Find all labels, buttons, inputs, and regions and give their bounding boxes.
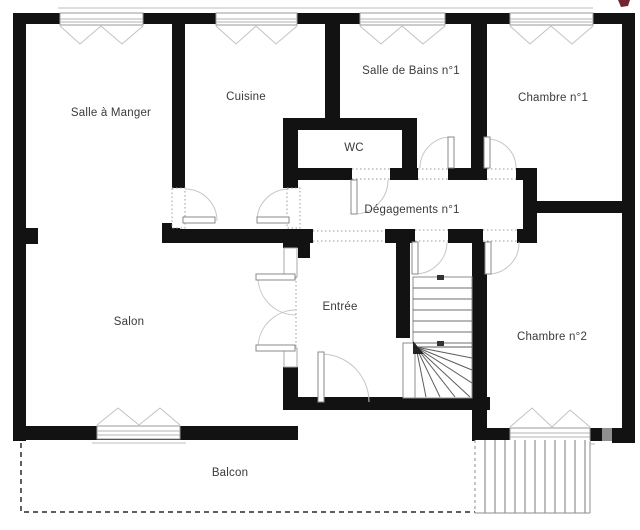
door-leaf-salon-top bbox=[256, 274, 295, 280]
wall-corridor-top-1 bbox=[283, 168, 352, 180]
door-leaf-ch2 bbox=[485, 242, 491, 274]
door-arc-salon-bottom bbox=[258, 310, 296, 348]
wall-cuisine-sdb bbox=[325, 24, 340, 130]
door-leaf-ch1 bbox=[484, 137, 490, 168]
door-arc-ch2 bbox=[488, 242, 519, 274]
room-label-cuisine: Cuisine bbox=[226, 91, 266, 103]
room-label-salon: Salon bbox=[114, 316, 144, 328]
door-leaf-landing bbox=[412, 242, 418, 274]
logo-fragment-icon bbox=[618, 0, 630, 7]
door-arc-landing bbox=[415, 242, 447, 274]
room-label-chambre-1: Chambre n°1 bbox=[518, 92, 588, 104]
door-leaf-sdb bbox=[448, 137, 454, 168]
door-arc-salon-top bbox=[258, 277, 296, 315]
wall-salon-entree-top bbox=[283, 230, 298, 248]
wall-ch1-ch2-divider bbox=[537, 201, 622, 213]
door-arc-front bbox=[321, 354, 369, 402]
terrace-hatch bbox=[475, 440, 590, 513]
staircase-box bbox=[413, 277, 472, 398]
door-leaf-front bbox=[318, 352, 324, 402]
wall-left bbox=[13, 13, 26, 441]
wall-midband-2 bbox=[385, 229, 415, 243]
door-leaf-corridor-cuisine bbox=[257, 217, 289, 223]
wall-sam-cuisine bbox=[172, 24, 185, 188]
floor-plan: Salle à Manger Cuisine Salle de Bains n°… bbox=[0, 0, 640, 530]
staircase-mark-top bbox=[437, 275, 444, 280]
room-label-degagements: Dégagements n°1 bbox=[364, 204, 459, 216]
room-label-salle-a-manger: Salle à Manger bbox=[71, 107, 151, 119]
staircase bbox=[403, 275, 472, 398]
wall-sam-stub bbox=[26, 228, 38, 244]
door-leaf-wc bbox=[351, 180, 357, 214]
door-arc-corridor-cuisine bbox=[257, 189, 289, 221]
door-arc-ch1 bbox=[487, 139, 516, 168]
wall-entree-tstub bbox=[298, 243, 310, 258]
masked-wall-segment bbox=[602, 428, 612, 441]
door-leaf-salon-bottom bbox=[256, 345, 295, 351]
wall-corridor-top-2 bbox=[390, 168, 418, 180]
wall-entree-bottom bbox=[283, 397, 490, 410]
wall-wc-top bbox=[283, 118, 417, 130]
room-label-entree: Entrée bbox=[322, 301, 357, 313]
room-label-chambre-2: Chambre n°2 bbox=[517, 331, 587, 343]
room-label-salle-de-bains: Salle de Bains n°1 bbox=[362, 65, 460, 77]
window-salon bbox=[97, 426, 180, 439]
wall-right bbox=[622, 13, 635, 443]
floor-plan-drawing bbox=[0, 0, 640, 530]
door-arc-sdb bbox=[420, 137, 451, 168]
wall-ch2-bottom-right bbox=[612, 428, 635, 443]
window-chambre2 bbox=[510, 428, 590, 441]
door-arc-sam-cuisine bbox=[185, 189, 217, 221]
wall-stair-left bbox=[396, 243, 410, 338]
wall-salon-entree-bottom bbox=[283, 367, 298, 410]
room-label-wc: WC bbox=[344, 142, 364, 154]
wall-midband-3 bbox=[448, 229, 483, 243]
staircase-mark-mid bbox=[437, 341, 444, 346]
room-label-balcon: Balcon bbox=[212, 467, 248, 479]
door-leaf-sam-cuisine bbox=[183, 217, 215, 223]
wall-corridor-right bbox=[523, 168, 537, 243]
